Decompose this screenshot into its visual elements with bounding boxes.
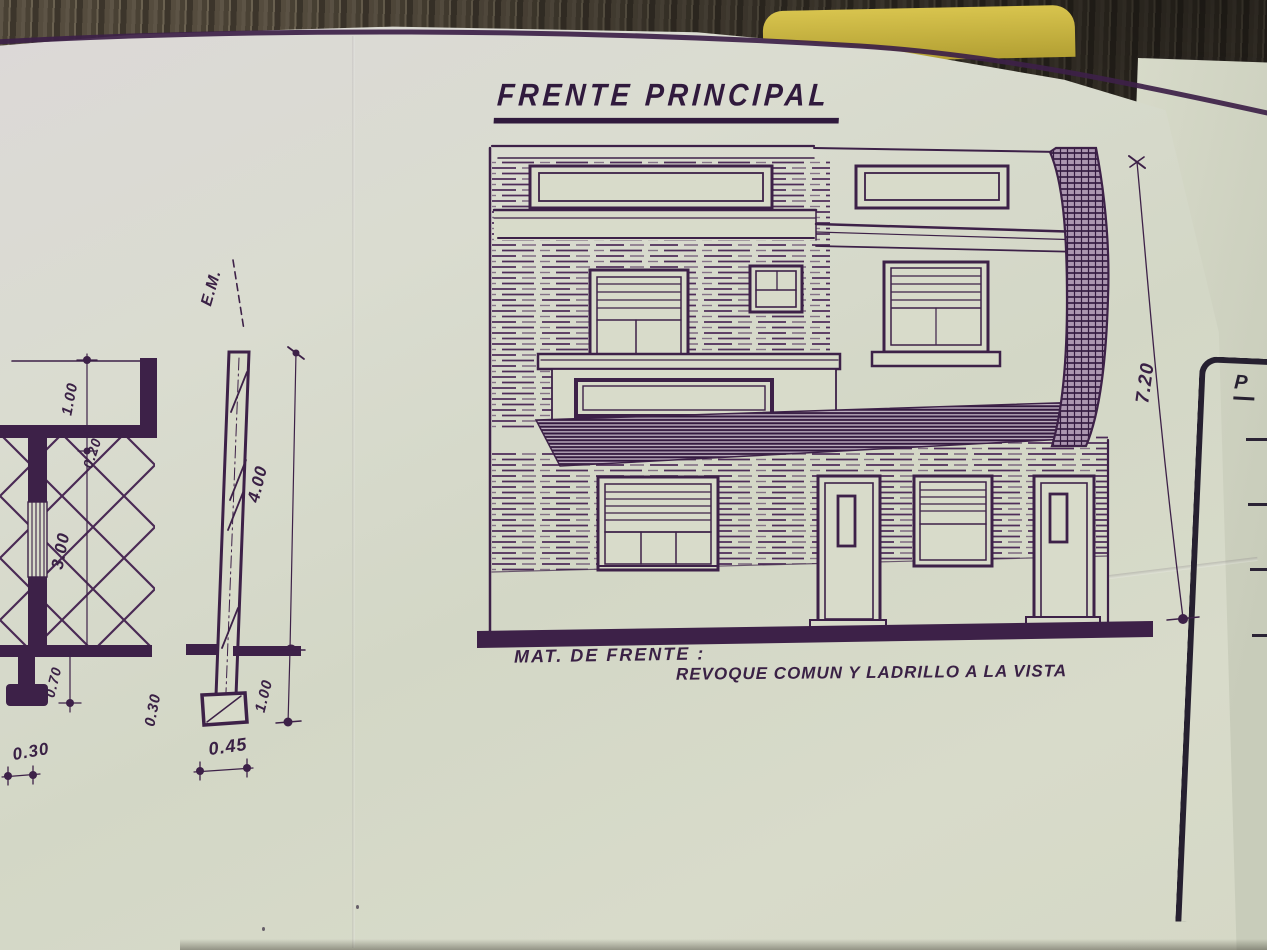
photo-edge-shadow <box>180 939 1267 950</box>
facade-elevation <box>477 146 1199 648</box>
drawing-title: FRENTE PRINCIPAL <box>494 78 841 124</box>
blueprint-linework <box>0 0 1267 950</box>
wall-section-detail <box>186 260 305 780</box>
photographed-blueprint-scene: P <box>0 0 1267 950</box>
floor-plan-fragment <box>0 354 157 785</box>
material-note-value: REVOQUE COMUN Y LADRILLO A LA VISTA <box>676 661 1067 684</box>
